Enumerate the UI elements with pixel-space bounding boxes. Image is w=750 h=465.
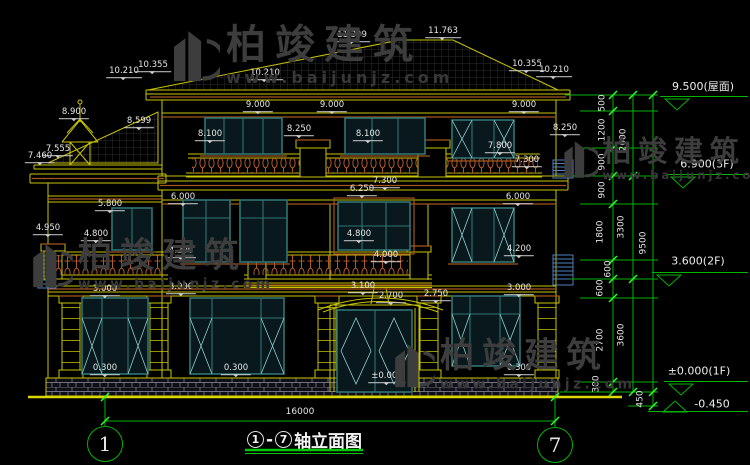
elevation-drawing-canvas — [0, 0, 750, 465]
drawing-title: 1 - 7 轴立面图 — [246, 427, 362, 452]
title-text: 轴立面图 — [294, 427, 362, 452]
cad-drawing-stage: 11.76311.39910.21010.35510.21010.35510.2… — [0, 0, 750, 465]
title-separator: - — [266, 430, 273, 450]
title-axis-end-bubble: 7 — [275, 431, 292, 448]
title-axis-start-bubble: 1 — [247, 431, 264, 448]
overall-span-dimension: 16000 — [286, 407, 315, 417]
